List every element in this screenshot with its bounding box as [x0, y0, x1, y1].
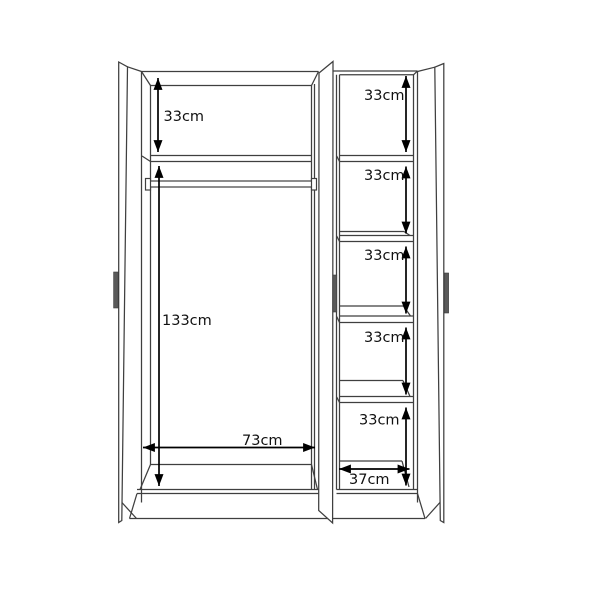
dim-label-right-shelf-3: 33cm — [364, 248, 405, 264]
middle-door — [319, 62, 337, 524]
dim-right-width: 37cm — [339, 469, 410, 488]
dim-right-shelf-3: 33cm — [364, 247, 406, 314]
left-top-shelf-bevel-line — [142, 156, 151, 162]
left-door — [114, 62, 142, 523]
right-shelf-1 — [337, 156, 414, 162]
left-door-bottom-edge-line — [122, 503, 137, 519]
right-door-panel — [435, 64, 444, 523]
base-plinth — [130, 490, 426, 519]
hanging-rail — [146, 179, 317, 191]
top-left-miter-line — [142, 72, 151, 86]
left-door-panel — [119, 62, 128, 523]
dim-label-left-top-shelf: 33cm — [164, 109, 205, 125]
middle-door-panel — [319, 62, 333, 524]
left-floor — [140, 465, 318, 490]
dim-right-shelf-2: 33cm — [364, 167, 406, 234]
dim-label-right-shelf-1: 33cm — [364, 88, 405, 104]
right-shelf-2 — [337, 232, 414, 242]
dim-left-hanging-height: 133cm — [159, 166, 212, 486]
right-shelf-3 — [337, 306, 414, 323]
left-top-shelf — [142, 156, 312, 162]
dim-label-right-width: 37cm — [349, 472, 390, 488]
wardrobe-dimension-diagram: 33cm 133cm 73cm 33cm 33cm 33cm 33cm 33cm… — [0, 0, 600, 600]
right-door-bottom-edge-line — [426, 503, 440, 519]
shelf-corner-line — [404, 306, 411, 316]
left-door-handle — [114, 272, 119, 308]
dim-label-right-shelf-5: 33cm — [359, 413, 400, 429]
dim-label-left-hanging-height: 133cm — [162, 313, 212, 329]
dim-label-right-shelf-2: 33cm — [364, 168, 405, 184]
plinth-right-corner-line — [418, 494, 426, 519]
dim-label-left-width: 73cm — [242, 433, 283, 449]
middle-door-handle — [333, 275, 337, 312]
dim-right-shelf-1: 33cm — [364, 76, 406, 152]
right-door — [418, 64, 449, 523]
left-door-top-edge-line — [128, 67, 142, 72]
dim-left-width: 73cm — [143, 433, 315, 449]
dim-left-top-shelf-height: 33cm — [158, 78, 204, 152]
hanging-rail-end-cap-left — [146, 179, 151, 191]
right-door-top-edge-line — [418, 67, 435, 71]
dim-right-shelf-4: 33cm — [364, 328, 406, 395]
wardrobe-diagram-svg: 33cm 133cm 73cm 33cm 33cm 33cm 33cm 33cm… — [0, 0, 600, 600]
dim-label-right-shelf-4: 33cm — [364, 330, 405, 346]
top-right-miter-line — [312, 72, 319, 86]
hanging-rail-bar — [148, 181, 314, 187]
right-shelf-4 — [337, 381, 414, 403]
hanging-rail-end-cap-right — [312, 179, 317, 191]
right-door-handle — [444, 273, 448, 313]
